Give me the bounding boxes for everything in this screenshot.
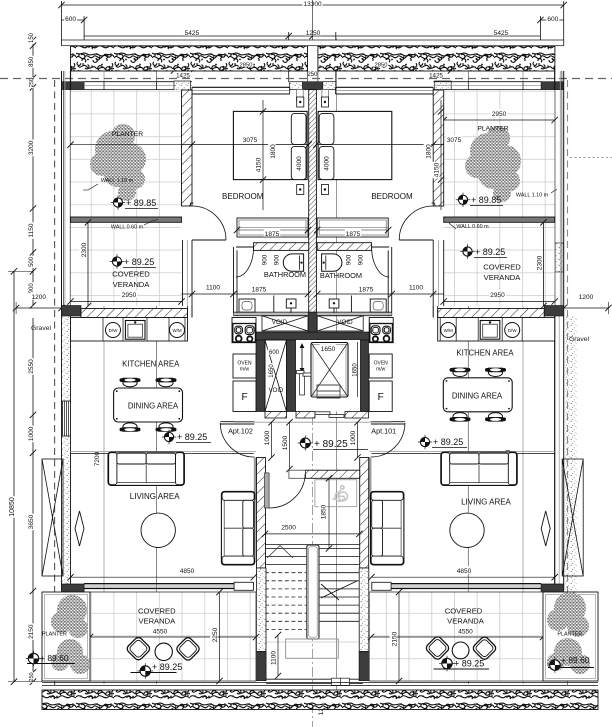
svg-text:2150: 2150 <box>28 624 35 639</box>
svg-text:KITCHEN AREA: KITCHEN AREA <box>456 349 514 358</box>
svg-text:10850: 10850 <box>9 497 16 517</box>
svg-text:LIVING AREA: LIVING AREA <box>461 498 511 507</box>
svg-text:1250: 1250 <box>306 30 321 37</box>
svg-text:VOID: VOID <box>269 388 284 394</box>
svg-text:250: 250 <box>29 78 35 87</box>
svg-text:2950: 2950 <box>122 292 137 299</box>
svg-text:1150: 1150 <box>28 223 35 237</box>
svg-text:WALL 0.60 m: WALL 0.60 m <box>456 224 489 230</box>
svg-text:1650: 1650 <box>321 346 336 353</box>
svg-text:1100: 1100 <box>206 285 220 292</box>
svg-text:1650: 1650 <box>352 363 358 377</box>
svg-text:600: 600 <box>65 16 76 23</box>
svg-text:PLANTER: PLANTER <box>42 632 67 638</box>
svg-text:PLANTER: PLANTER <box>477 126 508 133</box>
svg-text:KITCHEN AREA: KITCHEN AREA <box>122 360 180 369</box>
svg-text:W/M: W/M <box>444 328 453 333</box>
svg-text:Apt.102: Apt.102 <box>228 427 253 436</box>
svg-text:VERANDA: VERANDA <box>113 280 151 289</box>
svg-text:F: F <box>378 392 384 403</box>
svg-text:1800: 1800 <box>426 144 433 159</box>
svg-text:Apt.101: Apt.101 <box>371 427 396 436</box>
svg-text:+ 89.85: + 89.85 <box>471 195 501 205</box>
svg-text:1500: 1500 <box>282 435 289 450</box>
svg-text:VERANDA: VERANDA <box>138 617 176 626</box>
svg-text:4150: 4150 <box>256 157 263 172</box>
svg-text:850: 850 <box>29 56 35 67</box>
svg-text:VOID: VOID <box>272 319 288 326</box>
svg-text:5425: 5425 <box>185 30 200 37</box>
svg-text:1875: 1875 <box>265 231 280 238</box>
svg-text:+ 89.60: + 89.60 <box>40 653 69 663</box>
svg-text:1100: 1100 <box>271 651 278 665</box>
svg-text:1000: 1000 <box>350 430 357 445</box>
svg-text:+ 89.85: + 89.85 <box>126 198 156 208</box>
svg-text:W/M: W/M <box>172 328 181 333</box>
svg-text:250: 250 <box>307 72 318 78</box>
svg-text:Gravel: Gravel <box>569 336 590 343</box>
svg-text:4850: 4850 <box>457 568 472 575</box>
svg-text:2250: 2250 <box>212 627 219 642</box>
svg-text:2150: 2150 <box>392 631 399 646</box>
svg-text:1200: 1200 <box>32 294 47 301</box>
svg-text:1200: 1200 <box>579 294 594 301</box>
svg-text:5425: 5425 <box>494 30 509 37</box>
svg-text:600: 600 <box>269 350 280 356</box>
svg-text:COVERED: COVERED <box>138 607 176 616</box>
svg-text:4000: 4000 <box>324 156 331 171</box>
svg-text:DINING AREA: DINING AREA <box>452 392 503 401</box>
svg-text:3075: 3075 <box>243 137 258 144</box>
svg-text:1875: 1875 <box>252 287 267 294</box>
svg-text:VOID: VOID <box>337 319 353 326</box>
svg-text:4000: 4000 <box>296 156 303 171</box>
svg-text:600: 600 <box>547 16 558 23</box>
svg-text:4850: 4850 <box>180 568 195 575</box>
svg-text:900: 900 <box>357 254 364 265</box>
svg-text:COVERED: COVERED <box>112 270 150 279</box>
svg-text:+ 89.25: + 89.25 <box>475 247 505 257</box>
svg-text:D/W: D/W <box>508 328 518 333</box>
svg-text:2850: 2850 <box>240 62 253 68</box>
svg-text:2300: 2300 <box>537 255 544 270</box>
svg-text:m/w: m/w <box>240 367 250 373</box>
svg-text:BATHROOM: BATHROOM <box>320 271 362 280</box>
svg-text:2300: 2300 <box>81 242 88 257</box>
svg-text:+ 89.60: + 89.60 <box>561 655 590 665</box>
svg-text:COVERED: COVERED <box>483 263 521 272</box>
svg-text:2850: 2850 <box>375 62 388 68</box>
svg-text:+ 89.25: + 89.25 <box>314 439 348 450</box>
svg-text:1000: 1000 <box>264 430 271 445</box>
svg-text:1000: 1000 <box>28 426 35 441</box>
svg-text:WALL 1.10 m: WALL 1.10 m <box>101 178 134 184</box>
svg-text:LIVING AREA: LIVING AREA <box>130 492 180 501</box>
svg-text:PLANTER: PLANTER <box>112 131 143 138</box>
svg-text:150: 150 <box>29 32 35 43</box>
svg-text:4150: 4150 <box>434 162 441 177</box>
svg-text:VERANDA: VERANDA <box>447 617 485 626</box>
svg-text:m/w: m/w <box>376 367 386 373</box>
svg-text:BEDROOM: BEDROOM <box>222 192 264 201</box>
svg-text:Gravel: Gravel <box>31 325 52 332</box>
svg-text:4550: 4550 <box>153 629 168 636</box>
svg-text:+ 89.25: + 89.25 <box>454 659 484 669</box>
svg-text:PLANTER: PLANTER <box>557 632 582 638</box>
svg-text:1800: 1800 <box>270 144 277 159</box>
svg-text:1650: 1650 <box>269 364 275 378</box>
svg-text:BATHROOM: BATHROOM <box>264 270 306 279</box>
svg-text:1875: 1875 <box>346 231 361 238</box>
svg-text:WALL 1.10 m: WALL 1.10 m <box>516 193 549 199</box>
svg-text:500: 500 <box>29 256 35 267</box>
svg-text:VERANDA: VERANDA <box>484 273 522 282</box>
svg-text:3075: 3075 <box>447 137 462 144</box>
svg-text:F: F <box>241 392 247 403</box>
svg-text:250: 250 <box>29 672 35 681</box>
svg-text:1100: 1100 <box>409 285 423 292</box>
svg-text:DINING AREA: DINING AREA <box>128 402 179 411</box>
svg-text:900: 900 <box>29 283 35 294</box>
svg-text:900: 900 <box>273 254 280 265</box>
svg-text:1875: 1875 <box>359 287 374 294</box>
svg-text:WALL 0.60 m: WALL 0.60 m <box>111 225 144 231</box>
svg-text:3200: 3200 <box>28 140 35 155</box>
svg-text:2950: 2950 <box>492 111 507 118</box>
svg-text:4550: 4550 <box>458 629 473 636</box>
svg-text:3650: 3650 <box>28 514 35 529</box>
svg-text:2950: 2950 <box>490 292 505 299</box>
svg-text:2500: 2500 <box>281 525 296 532</box>
svg-text:+ 89.25: + 89.25 <box>124 257 154 267</box>
svg-text:2550: 2550 <box>28 359 35 374</box>
svg-text:1850: 1850 <box>321 504 328 519</box>
svg-text:BEDROOM: BEDROOM <box>371 192 413 201</box>
svg-text:+ 89.25: + 89.25 <box>433 437 463 447</box>
svg-text:900: 900 <box>345 254 352 265</box>
svg-text:+ 89.25: + 89.25 <box>152 662 182 672</box>
svg-text:COVERED: COVERED <box>445 607 483 616</box>
svg-text:D/W: D/W <box>109 328 119 333</box>
svg-text:900: 900 <box>261 254 268 265</box>
svg-text:+ 89.25: + 89.25 <box>177 432 207 442</box>
